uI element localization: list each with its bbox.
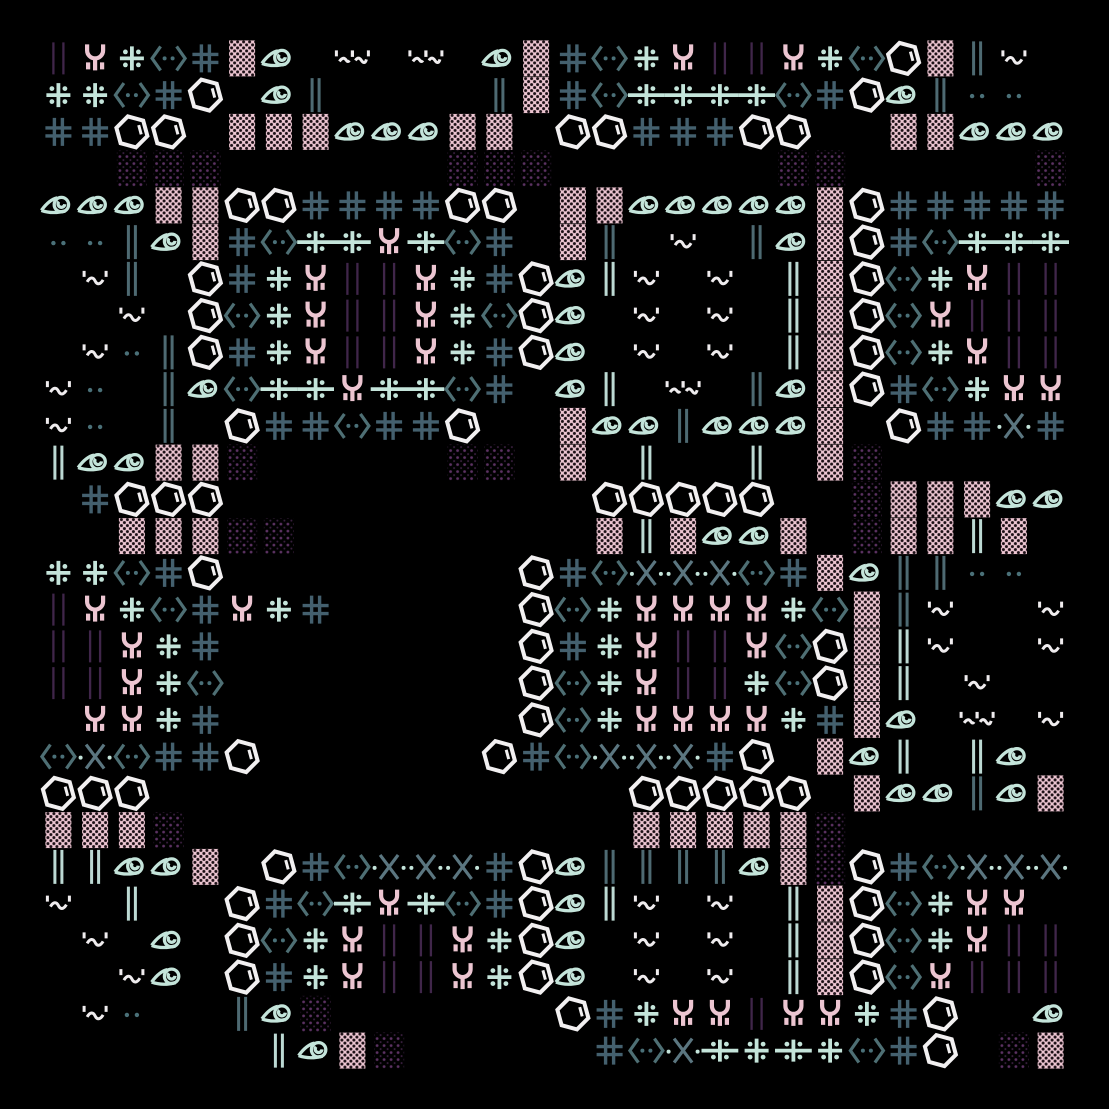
pink-dotted-block-icon (82, 812, 108, 848)
pink-dotted-block-icon (597, 518, 623, 554)
pink-dotted-block-icon (266, 114, 292, 150)
pink-dotted-block-icon (670, 812, 696, 848)
pink-dotted-block-icon (192, 849, 218, 885)
purple-dot-patch-icon (815, 812, 845, 848)
pink-dotted-block-icon (192, 518, 218, 554)
purple-dot-patch-icon (301, 996, 331, 1032)
pink-dotted-block-icon (229, 114, 255, 150)
pink-dotted-block-icon (339, 1033, 365, 1069)
pink-dotted-block-icon (560, 187, 586, 223)
purple-dot-patch-icon (448, 151, 478, 187)
pink-dotted-block-icon (817, 959, 843, 995)
pink-dotted-block-icon (817, 739, 843, 775)
pink-dotted-block-icon (891, 114, 917, 150)
purple-dot-patch-icon (264, 518, 294, 554)
pink-dotted-block-icon (891, 518, 917, 554)
pink-dotted-block-icon (817, 371, 843, 407)
pink-dotted-block-icon (817, 555, 843, 591)
glyph-canvas (0, 0, 1109, 1109)
pink-dotted-block-icon (780, 812, 806, 848)
pink-dotted-block-icon (119, 812, 145, 848)
pink-dotted-block-icon (597, 187, 623, 223)
purple-dot-patch-icon (484, 151, 514, 187)
purple-dot-patch-icon (374, 1033, 404, 1069)
pink-dotted-block-icon (927, 518, 953, 554)
pink-dotted-block-icon (927, 40, 953, 76)
pink-dotted-block-icon (854, 775, 880, 811)
pink-dotted-block-icon (927, 481, 953, 517)
pink-dotted-block-icon (45, 812, 71, 848)
pink-dotted-block-icon (523, 77, 549, 113)
purple-dot-patch-icon (852, 518, 882, 554)
pink-dotted-block-icon (780, 849, 806, 885)
purple-dot-patch-icon (778, 151, 808, 187)
pink-dotted-block-icon (303, 114, 329, 150)
pink-dotted-block-icon (560, 445, 586, 481)
pink-dotted-block-icon (817, 445, 843, 481)
purple-dot-patch-icon (521, 151, 551, 187)
pink-dotted-block-icon (964, 481, 990, 517)
pink-dotted-block-icon (523, 40, 549, 76)
pink-dotted-block-icon (670, 518, 696, 554)
pink-dotted-block-icon (1038, 1033, 1064, 1069)
pink-dotted-block-icon (817, 334, 843, 370)
pink-dotted-block-icon (156, 518, 182, 554)
purple-dot-patch-icon (154, 812, 184, 848)
pink-dotted-block-icon (486, 114, 512, 150)
pink-dotted-block-icon (1038, 775, 1064, 811)
pink-dotted-block-icon (560, 224, 586, 260)
purple-dot-patch-icon (227, 445, 257, 481)
pink-dotted-block-icon (633, 812, 659, 848)
pink-dotted-block-icon (192, 224, 218, 260)
purple-dot-patch-icon (227, 518, 257, 554)
pink-dotted-block-icon (817, 298, 843, 334)
pink-dotted-block-icon (817, 922, 843, 958)
purple-dot-patch-icon (815, 849, 845, 885)
purple-dot-patch-icon (999, 1033, 1029, 1069)
pink-dotted-block-icon (156, 187, 182, 223)
purple-dot-patch-icon (154, 151, 184, 187)
pink-dotted-block-icon (817, 224, 843, 260)
purple-dot-patch-icon (448, 445, 478, 481)
pink-dotted-block-icon (817, 408, 843, 444)
purple-dot-patch-icon (190, 151, 220, 187)
pink-dotted-block-icon (854, 665, 880, 701)
pink-dotted-block-icon (707, 812, 733, 848)
pink-dotted-block-icon (156, 445, 182, 481)
purple-dot-patch-icon (852, 445, 882, 481)
purple-dot-patch-icon (117, 151, 147, 187)
pink-dotted-block-icon (744, 812, 770, 848)
pink-dotted-block-icon (854, 702, 880, 738)
pink-dotted-block-icon (817, 886, 843, 922)
pink-dotted-block-icon (1001, 518, 1027, 554)
pink-dotted-block-icon (927, 114, 953, 150)
pink-dotted-block-icon (817, 187, 843, 223)
purple-dot-patch-icon (1036, 151, 1066, 187)
pink-dotted-block-icon (780, 518, 806, 554)
pink-dotted-block-icon (119, 518, 145, 554)
pink-dotted-block-icon (192, 445, 218, 481)
purple-dot-patch-icon (484, 445, 514, 481)
purple-dot-patch-icon (852, 481, 882, 517)
pink-dotted-block-icon (229, 40, 255, 76)
generative-artwork (0, 0, 1109, 1109)
pink-dotted-block-icon (854, 628, 880, 664)
pink-dotted-block-icon (854, 592, 880, 628)
purple-dot-patch-icon (815, 151, 845, 187)
pink-dotted-block-icon (192, 187, 218, 223)
pink-dotted-block-icon (560, 408, 586, 444)
pink-dotted-block-icon (450, 114, 476, 150)
pink-dotted-block-icon (817, 261, 843, 297)
pink-dotted-block-icon (891, 481, 917, 517)
